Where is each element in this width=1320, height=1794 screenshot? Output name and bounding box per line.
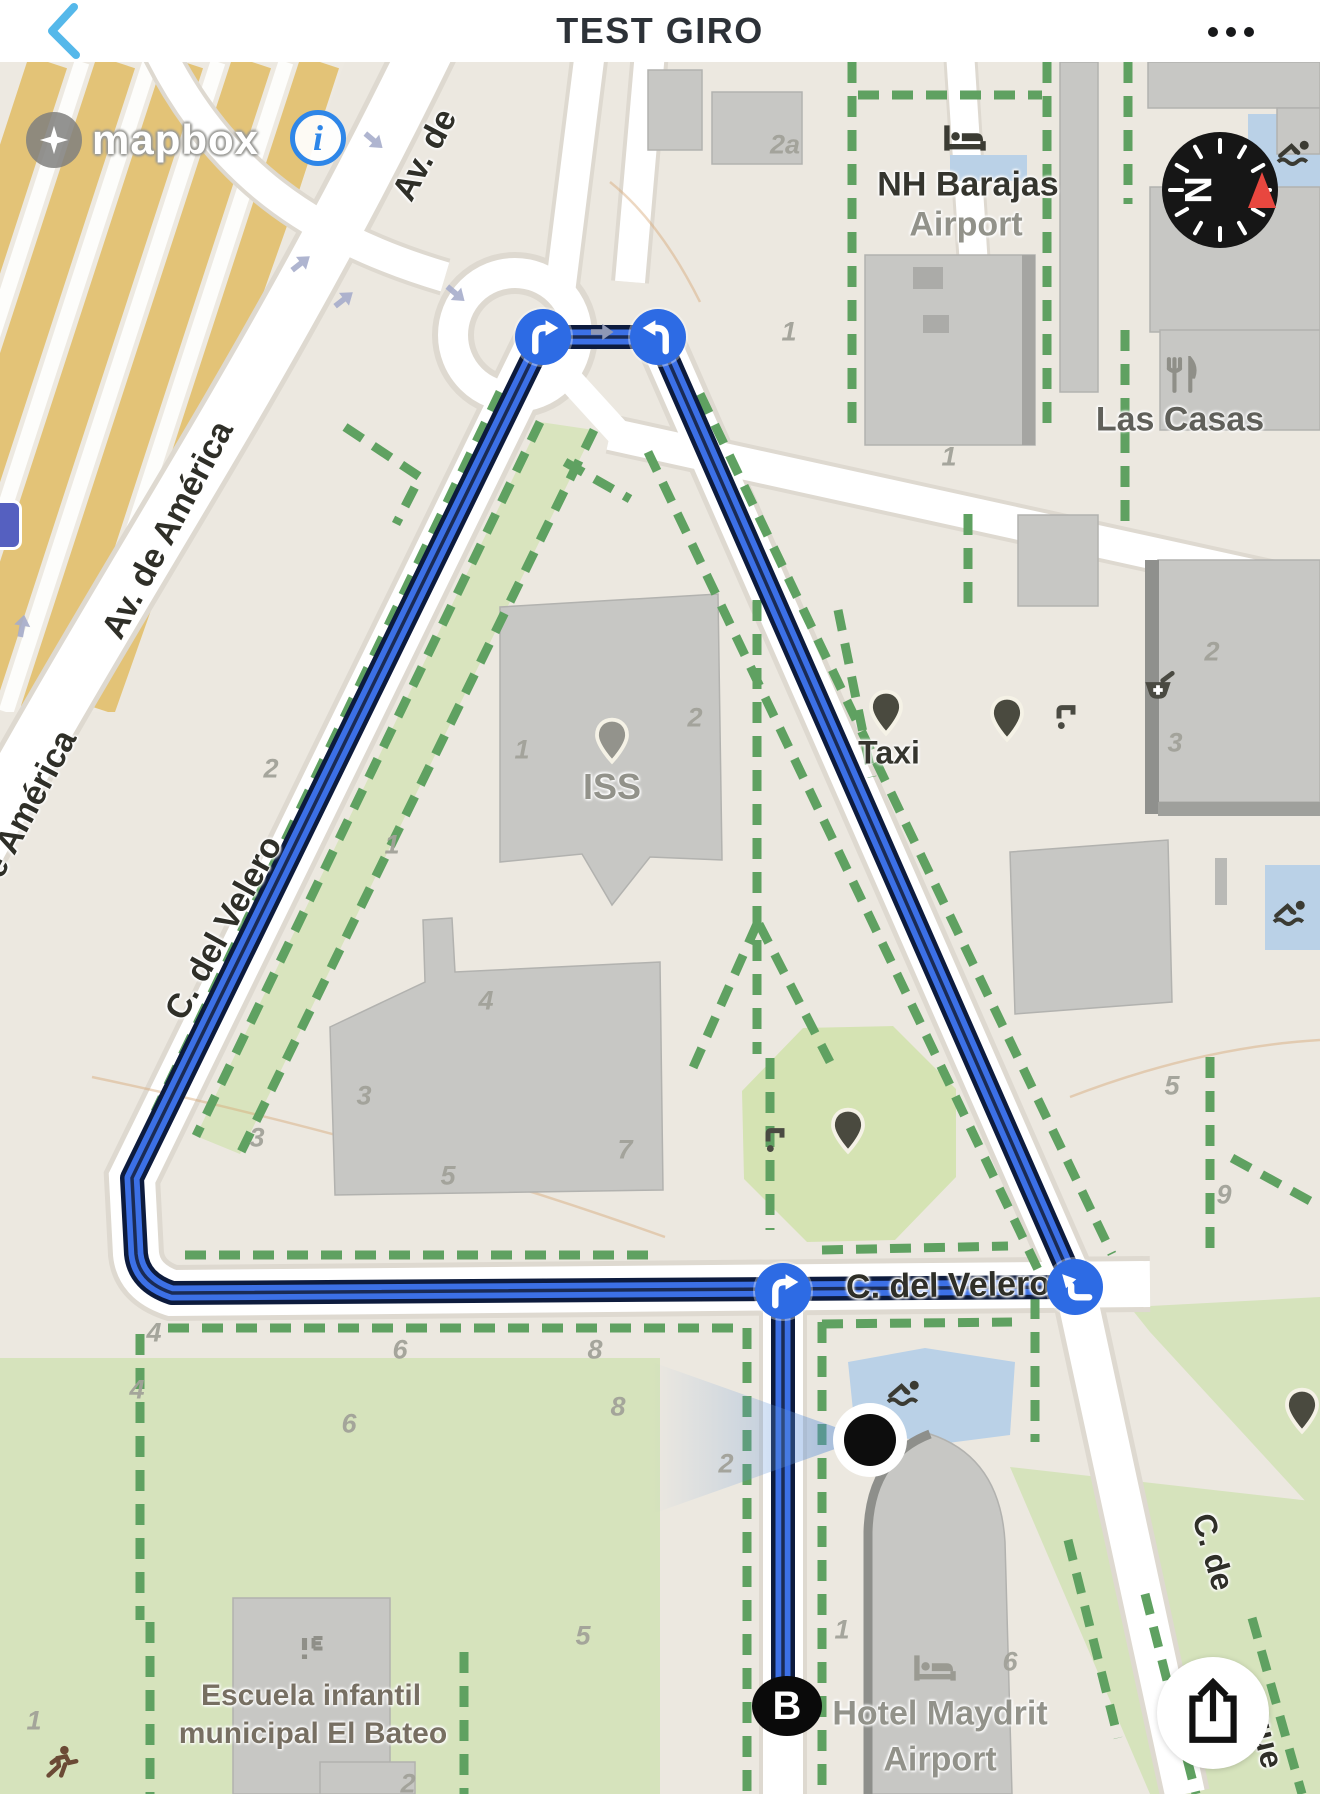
mapbox-wordmark: mapbox	[92, 116, 259, 164]
road-shield	[0, 500, 22, 550]
compass-button[interactable]: N	[1156, 126, 1284, 254]
ellipsis-icon	[1208, 27, 1218, 37]
map-canvas[interactable]: N mapbox i Av. deAv. de Américae América…	[0, 62, 1320, 1794]
mapbox-logo[interactable]: mapbox	[26, 112, 259, 168]
position-dot	[844, 1414, 896, 1466]
destination-b-label: B	[773, 1684, 802, 1729]
page-title: TEST GIRO	[0, 10, 1320, 52]
basemap-graphics	[0, 62, 1320, 1794]
overflow-menu-button[interactable]	[1208, 18, 1268, 46]
mapbox-pin-icon	[26, 112, 82, 168]
compass-north-label: N	[1176, 176, 1218, 203]
share-button[interactable]	[1157, 1657, 1269, 1769]
share-icon	[1182, 1676, 1244, 1751]
destination-b-marker: B	[752, 1676, 822, 1736]
attribution-info-button[interactable]: i	[290, 110, 346, 166]
header-bar: TEST GIRO	[0, 0, 1320, 62]
